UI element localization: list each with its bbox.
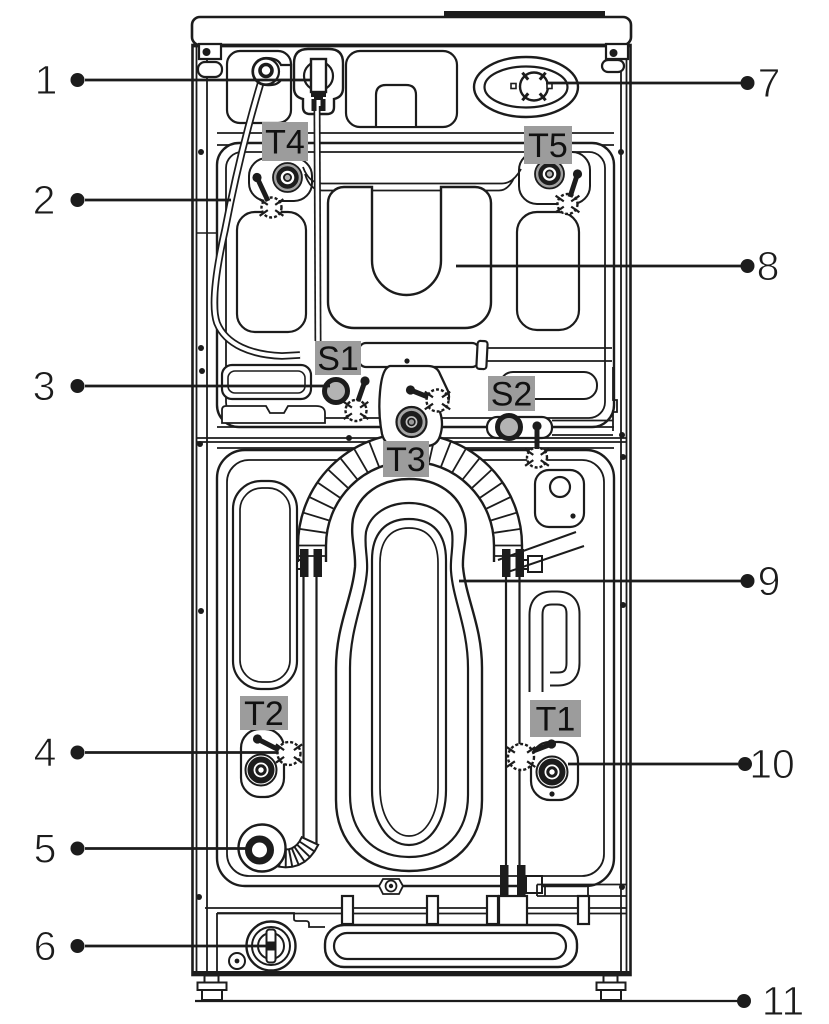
svg-text:S2: S2: [491, 376, 533, 414]
svg-text:S1: S1: [317, 340, 359, 378]
svg-text:11: 11: [762, 978, 805, 1024]
svg-text:8: 8: [757, 243, 780, 289]
svg-text:1: 1: [35, 57, 58, 103]
svg-text:T1: T1: [536, 701, 576, 739]
svg-text:3: 3: [33, 363, 56, 409]
svg-text:7: 7: [758, 60, 781, 106]
svg-text:5: 5: [34, 826, 57, 872]
svg-text:T5: T5: [528, 127, 568, 165]
svg-text:10: 10: [749, 741, 795, 787]
svg-text:T2: T2: [244, 695, 284, 733]
svg-text:4: 4: [34, 730, 57, 776]
svg-text:6: 6: [34, 923, 57, 969]
svg-text:9: 9: [758, 558, 781, 604]
svg-text:2: 2: [33, 177, 56, 223]
svg-text:T3: T3: [386, 441, 426, 479]
svg-text:T4: T4: [265, 124, 305, 162]
